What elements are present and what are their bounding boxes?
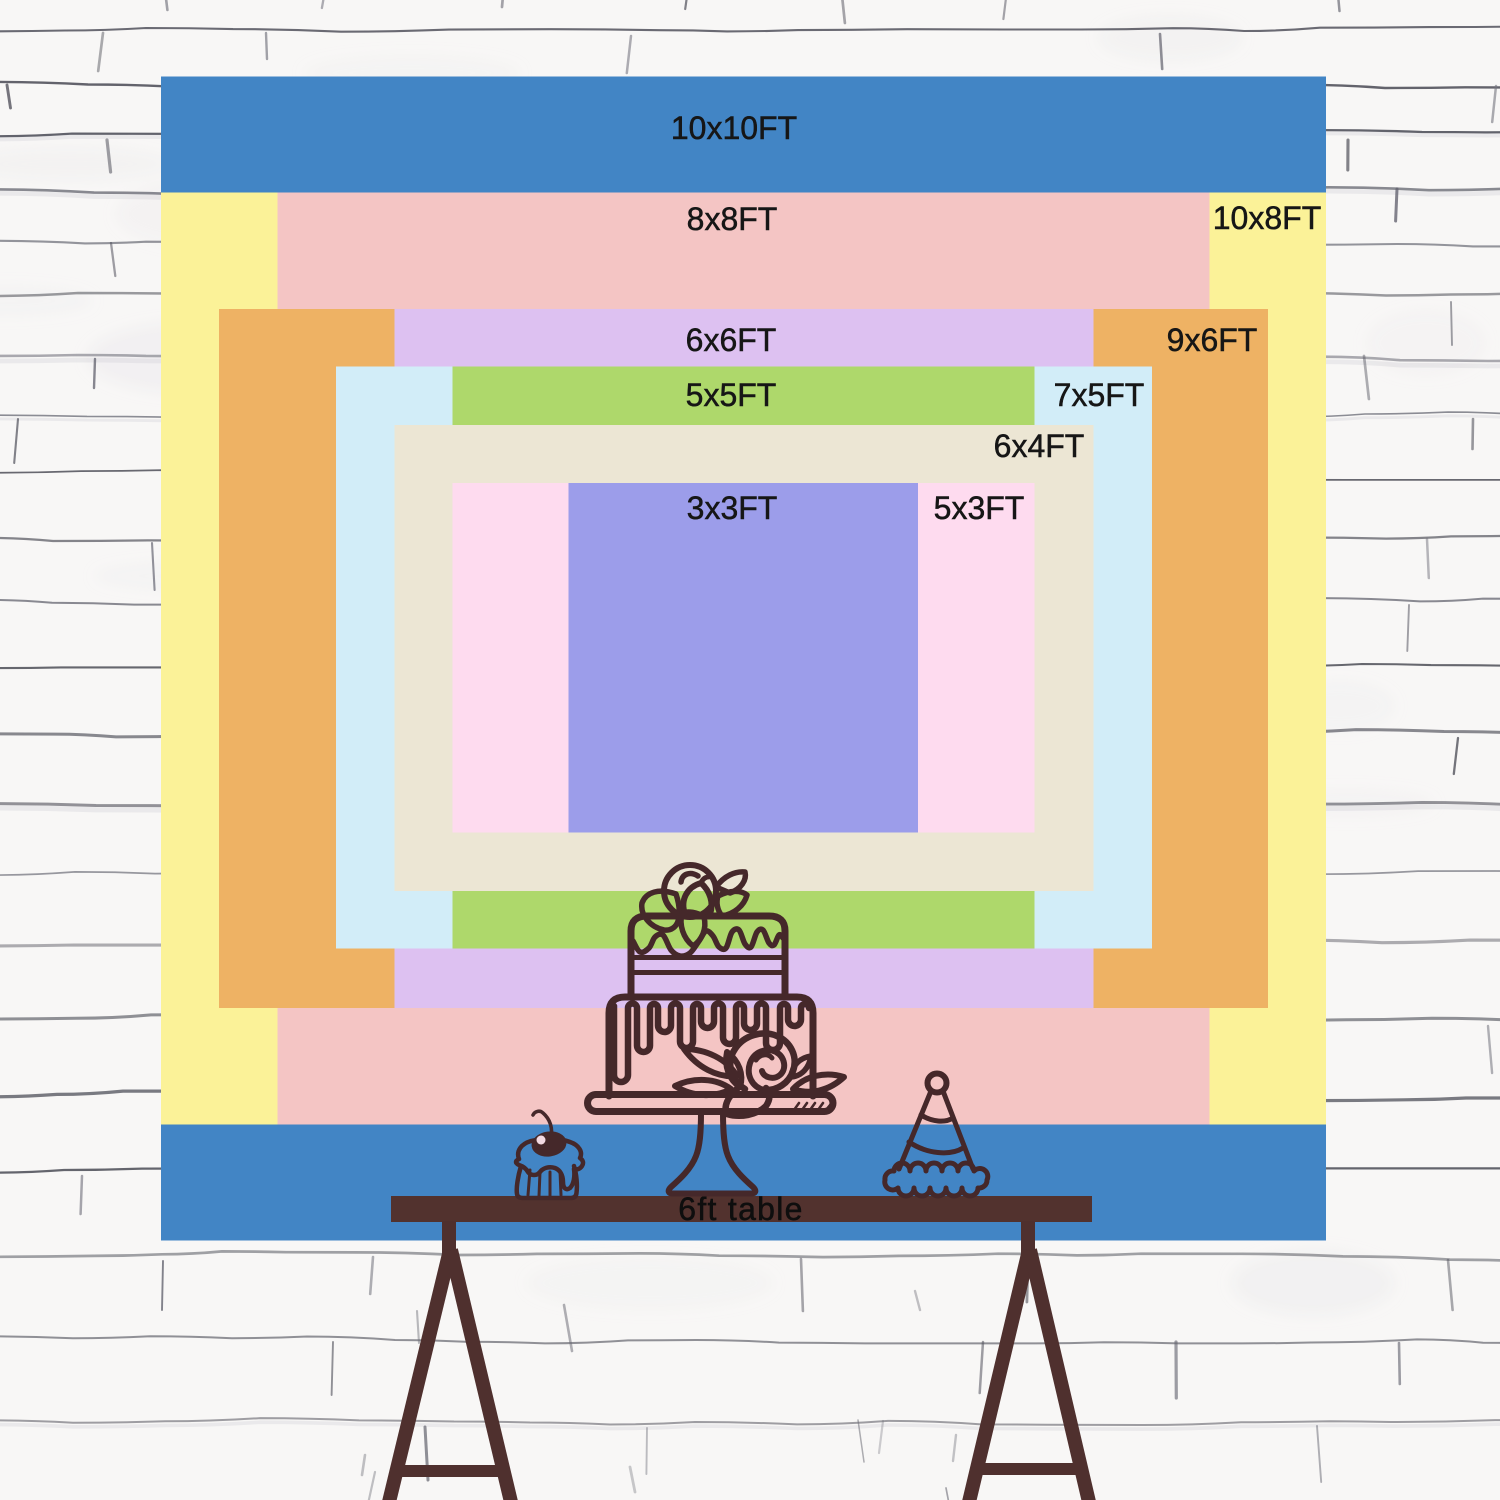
svg-text:3x3FT: 3x3FT	[687, 490, 778, 526]
svg-text:5x5FT: 5x5FT	[686, 377, 777, 413]
svg-text:5x3FT: 5x3FT	[934, 490, 1025, 526]
svg-text:10x8FT: 10x8FT	[1213, 200, 1321, 236]
svg-text:8x8FT: 8x8FT	[687, 201, 778, 237]
svg-text:6x6FT: 6x6FT	[686, 322, 777, 358]
svg-text:7x5FT: 7x5FT	[1054, 377, 1145, 413]
svg-text:6x4FT: 6x4FT	[994, 428, 1085, 464]
svg-text:10x10FT: 10x10FT	[671, 110, 797, 146]
svg-text:9x6FT: 9x6FT	[1167, 322, 1258, 358]
